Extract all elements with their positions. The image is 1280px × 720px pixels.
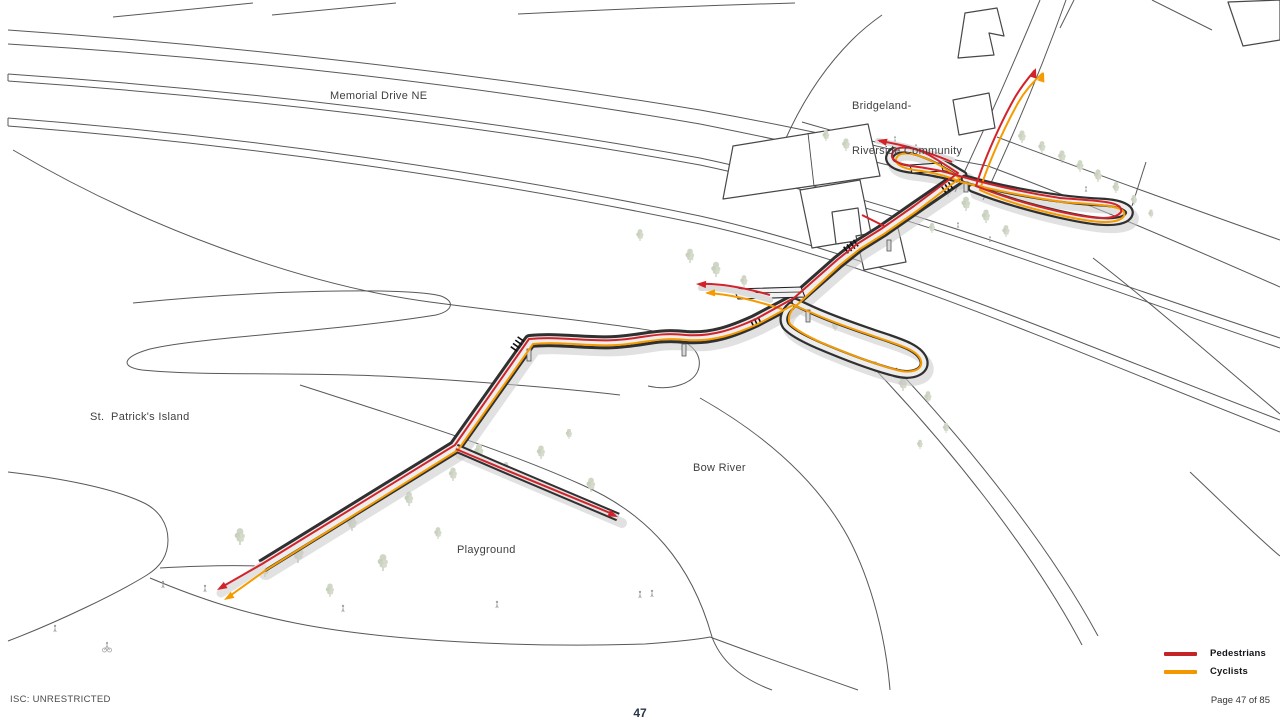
tree-icon [326,583,334,597]
security-classification: ISC: UNRESTRICTED [10,694,111,705]
slide-page-number: 47 [0,706,1280,720]
person-icon [639,591,641,598]
tree-icon [1131,195,1137,205]
label-playground: Playground [457,543,516,558]
tree-icon [449,467,457,481]
tree-icon [1076,160,1083,172]
site-plan-drawing [0,0,1280,717]
person-icon [204,585,206,592]
person-icon [651,590,653,597]
cyclists-line-swatch [1164,670,1197,674]
tree-icon [586,478,595,492]
tree-icon [566,429,572,439]
label-bridgeland-line2: Riverside Community [852,144,962,159]
legend-row-cyclists: Cyclists [1164,666,1266,677]
tree-icon [1002,225,1009,237]
tree-icon [235,528,245,545]
tree-icon [982,209,990,223]
tree-icon [1094,169,1102,182]
tree-icon [961,197,970,211]
tree-icon [537,445,545,459]
tree-icon [943,423,949,433]
legend: Pedestrians Cyclists [1164,648,1266,677]
tree-icon [740,275,747,287]
tree-icon [434,527,441,539]
tree-icon [917,440,923,449]
person-icon [496,601,498,608]
tree-icon [1113,182,1120,193]
person-icon [957,222,959,228]
tree-icon [711,262,720,277]
label-st-patricks-island: St. Patrick's Island [90,410,190,425]
label-memorial-drive: Memorial Drive NE [330,89,427,104]
person-icon [989,236,991,242]
person-icon [1085,186,1087,192]
person-icon [162,581,164,588]
tree-icon [924,391,931,403]
tree-icon [685,249,694,263]
pedestrians-line-swatch [1164,652,1197,656]
label-bridgeland-riverside: Bridgeland- Riverside Community [852,69,962,174]
tree-icon [1018,130,1026,143]
person-icon [342,605,344,612]
legend-row-pedestrians: Pedestrians [1164,648,1266,659]
tree-icon [378,554,388,571]
tree-icon [636,229,643,241]
legend-label-cyclists: Cyclists [1210,666,1248,677]
label-bridgeland-line1: Bridgeland- [852,99,962,114]
person-icon [54,625,56,632]
tree-icon [1148,210,1153,218]
building-corner [1228,0,1280,46]
cyclist-icon [103,642,112,652]
document-page: { "page": { "footer_left": "ISC: UNRESTR… [0,0,1280,717]
tree-icon [1038,141,1045,153]
tree-icon [929,223,935,233]
page-indicator: Page 47 of 85 [1211,695,1270,706]
label-bow-river: Bow River [693,461,746,476]
legend-label-pedestrians: Pedestrians [1210,648,1266,659]
tree-icon [1058,150,1066,163]
building-bridgeland-1 [958,8,1004,58]
